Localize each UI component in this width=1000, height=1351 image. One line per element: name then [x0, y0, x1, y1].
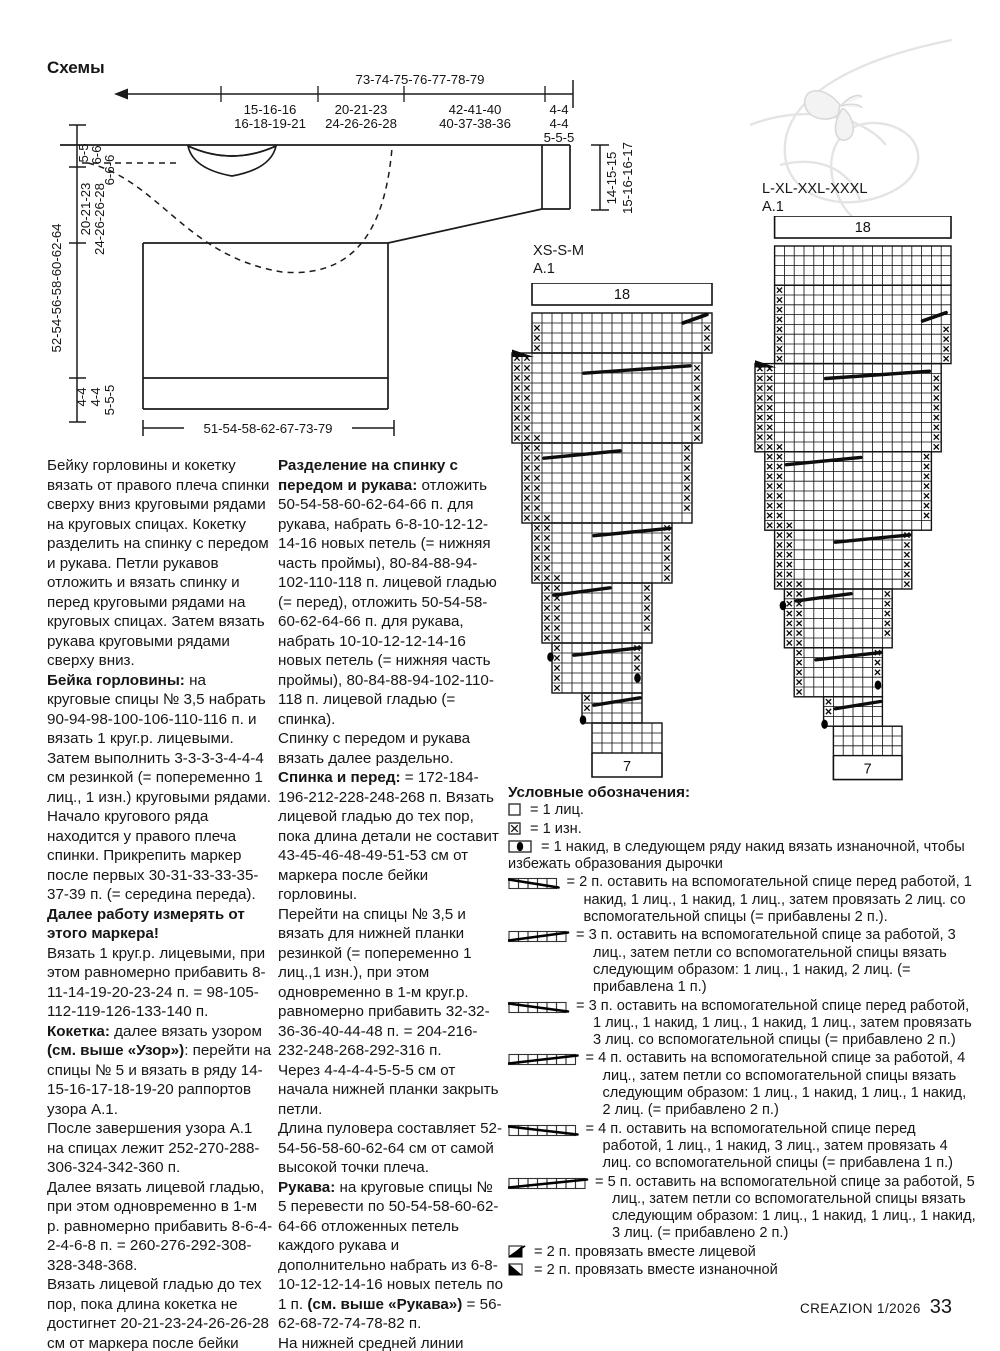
- symbol-legend: Условные обозначения: = 1 лиц. = 1 изн. …: [508, 784, 976, 1280]
- magazine-page: Схемы 73-74-75-76-77-78-7915-16-1616-18-…: [0, 0, 1000, 1351]
- paragraph: Вязать 1 круг.р. лицевыми, при этом равн…: [47, 944, 273, 1022]
- legend-item-text: = 3 п. оставить на вспомогательной спице…: [576, 927, 976, 996]
- measurement-label: 15-16-16: [244, 102, 297, 117]
- measurement-label: 24-26-26-28: [325, 116, 397, 131]
- k2tog-icon: [508, 1245, 526, 1258]
- legend-item: = 1 накид, в следующем ряду накид вязать…: [508, 839, 976, 874]
- measurement-label: 4-4: [88, 387, 103, 406]
- paragraph: Вязать лицевой гладью до тех пор, пока д…: [47, 1275, 273, 1351]
- paragraph: Через 4-4-4-4-5-5-5 см от начала нижней …: [278, 1061, 504, 1120]
- legend-item-text: = 3 п. оставить на вспомогательной спице…: [576, 998, 976, 1050]
- legend-item: = 4 п. оставить на вспомогательной спице…: [508, 1050, 976, 1119]
- measurement-label: 73-74-75-76-77-78-79: [355, 72, 484, 87]
- cable-5-front-icon: [508, 877, 562, 890]
- cable-7-back-icon: [508, 1053, 581, 1066]
- legend-item: = 4 п. оставить на вспомогательной спице…: [508, 1121, 976, 1173]
- paragraph: Спинка и перед: = 172-184-196-212-228-24…: [278, 768, 504, 905]
- measurement-label: 24-26-26-28: [92, 183, 107, 255]
- cable-6-back-icon: [508, 930, 571, 943]
- butterfly-icon: [805, 91, 862, 140]
- p2tog-icon: [508, 1263, 526, 1276]
- paragraph: Далее вязать лицевой гладью, при этом од…: [47, 1178, 273, 1276]
- cable-7-front-icon: [508, 1124, 581, 1137]
- paragraph: На нижней средней линии рукава прикрепит…: [278, 1334, 504, 1351]
- legend-item: = 3 п. оставить на вспомогательной спице…: [508, 927, 976, 996]
- page-number: 33: [930, 1296, 952, 1319]
- legend-item-text: = 2 п. провязать вместе лицевой: [530, 1244, 756, 1260]
- legend-item-text: = 5 п. оставить на вспомогательной спице…: [595, 1174, 976, 1243]
- legend-item-text: = 4 п. оставить на вспомогательной спице…: [586, 1121, 977, 1173]
- paragraph: Бейка горловины: на круговые спицы № 3,5…: [47, 671, 273, 808]
- measurement-label: 15-16-16-17: [620, 142, 635, 214]
- measurement-label: 14-15-15: [604, 152, 619, 205]
- instructions-column-1: Бейку горловины и кокетку вязать от прав…: [47, 456, 273, 1351]
- chart-top-stitch-count: 18: [855, 220, 871, 236]
- paragraph: Спинку с передом и рукава вязать далее р…: [278, 729, 504, 768]
- legend-item-text: = 4 п. оставить на вспомогательной спице…: [586, 1050, 977, 1119]
- legend-item: = 2 п. провязать вместе изнаночной: [508, 1262, 976, 1279]
- paragraph: Кокетка: далее вязать узором (см. выше «…: [47, 1022, 273, 1120]
- chart-size-label: XS-S-M A.1: [533, 243, 584, 278]
- measurement-label: 20-21-23: [78, 183, 93, 236]
- paragraph: Начало кругового ряда находится у правог…: [47, 807, 273, 944]
- paragraph: Перейти на спицы № 3,5 и вязать для нижн…: [278, 905, 504, 1061]
- legend-item-text: = 1 лиц.: [526, 802, 584, 818]
- knitting-chart-xs-s-m: 187: [501, 283, 739, 788]
- legend-heading: Условные обозначения:: [508, 784, 976, 801]
- paragraph: Бейку горловины и кокетку вязать от прав…: [47, 456, 273, 671]
- measurement-label: 20-21-23: [335, 102, 388, 117]
- purl-square-icon: [508, 822, 522, 835]
- chart-bottom-stitch-count: 7: [864, 762, 872, 778]
- measurement-label: 4-4: [549, 102, 568, 117]
- measurement-label: 16-18-19-21: [234, 116, 306, 131]
- measurement-label: 4-4: [74, 387, 89, 406]
- yarn-over-box-icon: [508, 840, 533, 853]
- cable-8-back-icon: [508, 1177, 590, 1190]
- measurement-label: 51-54-58-62-67-73-79: [203, 421, 332, 436]
- knitting-chart-l-xl-xxl-xxxl: 187: [744, 216, 982, 796]
- measurement-label: 5-5-5: [102, 385, 117, 416]
- paragraph: Рукава: на круговые спицы № 5 перевести …: [278, 1178, 504, 1334]
- legend-item: = 2 п. провязать вместе лицевой: [508, 1244, 976, 1261]
- measurement-label: 5-5-5: [544, 130, 575, 145]
- legend-item-text: = 1 изн.: [526, 821, 582, 837]
- magazine-issue: CREAZION 1/2026: [800, 1301, 921, 1316]
- legend-item-text: = 2 п. оставить на вспомогательной спице…: [567, 874, 977, 926]
- legend-item: = 3 п. оставить на вспомогательной спице…: [508, 998, 976, 1050]
- legend-item-text: = 1 накид, в следующем ряду накид вязать…: [508, 839, 965, 872]
- measurement-label: 52-54-56-58-60-62-64: [49, 223, 64, 352]
- paragraph: Разделение на спинку с передом и рукава:…: [278, 456, 504, 729]
- legend-item: = 5 п. оставить на вспомогательной спице…: [508, 1174, 976, 1243]
- chart-top-stitch-count: 18: [614, 287, 630, 303]
- page-footer: CREAZION 1/2026 33: [800, 1296, 952, 1319]
- legend-item: = 2 п. оставить на вспомогательной спице…: [508, 874, 976, 926]
- paragraph: После завершения узора А.1 на спицах леж…: [47, 1119, 273, 1178]
- chart-bottom-stitch-count: 7: [623, 759, 631, 775]
- legend-item: = 1 лиц.: [508, 802, 976, 819]
- legend-item: = 1 изн.: [508, 821, 976, 838]
- knit-square-icon: [508, 803, 522, 816]
- paragraph: Длина пуловера составляет 52-54-56-58-60…: [278, 1119, 504, 1178]
- measurement-label: 6-6-6: [102, 155, 117, 186]
- cable-6-front-icon: [508, 1001, 571, 1014]
- instructions-column-2: Разделение на спинку с передом и рукава:…: [278, 456, 504, 1351]
- chart-size-label: L-XL-XXL-XXXL A.1: [762, 181, 867, 216]
- measurement-label: 40-37-38-36: [439, 116, 511, 131]
- measurement-label: 4-4: [549, 116, 568, 131]
- legend-item-text: = 2 п. провязать вместе изнаночной: [530, 1262, 778, 1278]
- measurement-label: 42-41-40: [449, 102, 502, 117]
